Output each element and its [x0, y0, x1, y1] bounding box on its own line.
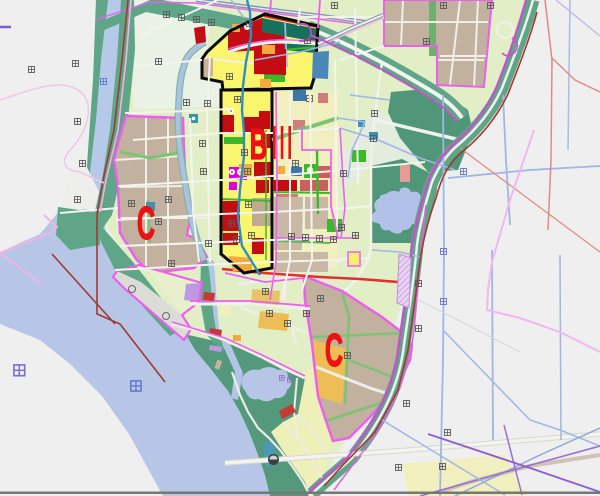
svg-text:C: C — [325, 324, 343, 376]
svg-text:C: C — [137, 197, 155, 249]
svg-text:B: B — [250, 119, 267, 169]
